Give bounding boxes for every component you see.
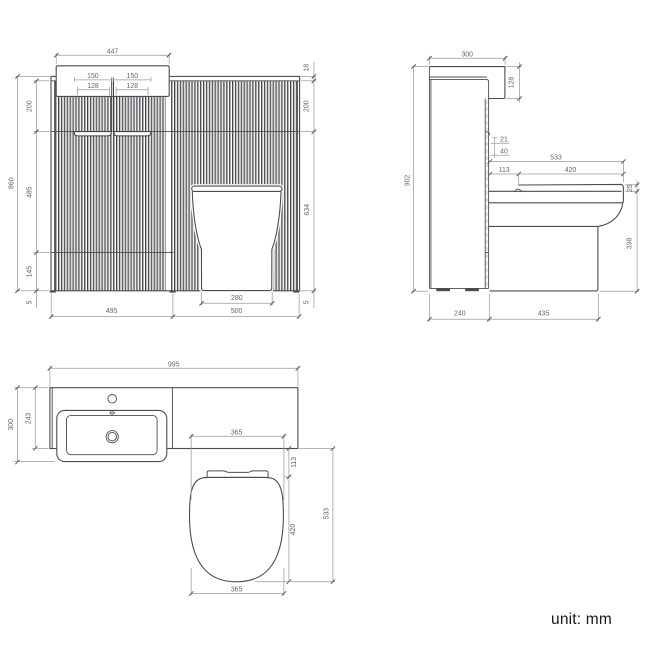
svg-text:435: 435 bbox=[538, 310, 550, 317]
svg-text:21: 21 bbox=[500, 137, 508, 144]
svg-text:300: 300 bbox=[461, 51, 473, 58]
svg-text:unit: mm: unit: mm bbox=[551, 611, 612, 628]
svg-text:243: 243 bbox=[26, 413, 33, 425]
svg-text:150: 150 bbox=[87, 73, 99, 80]
svg-text:128: 128 bbox=[508, 77, 515, 89]
svg-text:420: 420 bbox=[290, 524, 297, 536]
svg-text:25: 25 bbox=[627, 184, 634, 192]
svg-text:150: 150 bbox=[127, 73, 139, 80]
svg-text:300: 300 bbox=[8, 419, 15, 431]
svg-text:5: 5 bbox=[303, 300, 310, 304]
svg-text:634: 634 bbox=[304, 204, 311, 216]
svg-text:420: 420 bbox=[565, 167, 577, 174]
svg-text:500: 500 bbox=[231, 308, 243, 315]
svg-text:902: 902 bbox=[404, 175, 411, 187]
svg-text:128: 128 bbox=[127, 83, 139, 90]
svg-text:533: 533 bbox=[323, 508, 330, 520]
svg-text:447: 447 bbox=[107, 48, 119, 55]
svg-text:200: 200 bbox=[26, 100, 33, 112]
svg-text:485: 485 bbox=[26, 186, 33, 198]
svg-text:860: 860 bbox=[8, 177, 15, 189]
svg-text:240: 240 bbox=[454, 310, 466, 317]
svg-text:145: 145 bbox=[26, 266, 33, 278]
svg-text:365: 365 bbox=[231, 587, 243, 594]
svg-text:5: 5 bbox=[26, 300, 33, 304]
svg-text:113: 113 bbox=[291, 457, 298, 468]
svg-text:398: 398 bbox=[627, 237, 634, 249]
svg-text:18: 18 bbox=[304, 64, 311, 72]
svg-text:280: 280 bbox=[231, 295, 243, 302]
svg-text:128: 128 bbox=[87, 83, 99, 90]
svg-text:113: 113 bbox=[499, 167, 510, 174]
svg-text:40: 40 bbox=[500, 149, 508, 156]
svg-text:995: 995 bbox=[168, 361, 180, 368]
svg-text:533: 533 bbox=[550, 155, 562, 162]
svg-text:365: 365 bbox=[231, 429, 243, 436]
svg-text:200: 200 bbox=[304, 100, 311, 112]
svg-text:495: 495 bbox=[106, 308, 118, 315]
